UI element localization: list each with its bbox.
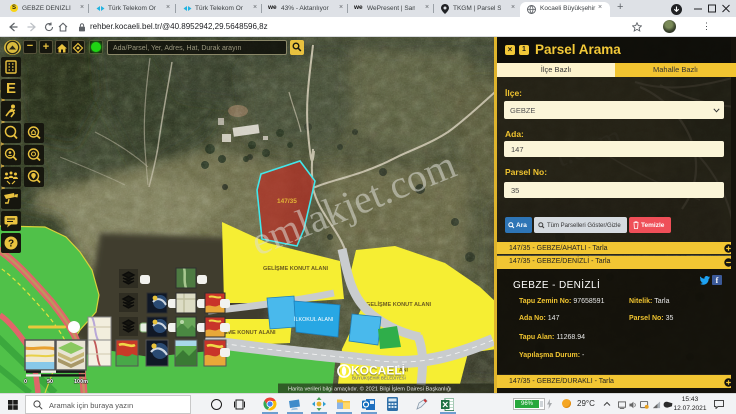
svg-text:İLKOKUL ALANI: İLKOKUL ALANI	[294, 316, 333, 323]
svg-text:BÜYÜKŞEHİR BELEDİYESİ: BÜYÜKŞEHİR BELEDİYESİ	[352, 376, 406, 381]
svg-text:GELİŞME KONUT ALANI: GELİŞME KONUT ALANI	[263, 265, 328, 272]
svg-text:İSME KONUT ALANI: İSME KONUT ALANI	[222, 329, 276, 336]
svg-text:®: ®	[397, 364, 400, 369]
svg-text:?: ?	[8, 239, 14, 250]
svg-text:50: 50	[47, 379, 53, 385]
svg-text:100m: 100m	[74, 379, 88, 385]
svg-text:Harita verileri bilgi amaçlıdı: Harita verileri bilgi amaçlıdır. © 2021 …	[288, 386, 452, 393]
svg-text:GELİŞME KONUT ALANI: GELİŞME KONUT ALANI	[366, 301, 431, 308]
svg-text:0: 0	[24, 379, 27, 385]
